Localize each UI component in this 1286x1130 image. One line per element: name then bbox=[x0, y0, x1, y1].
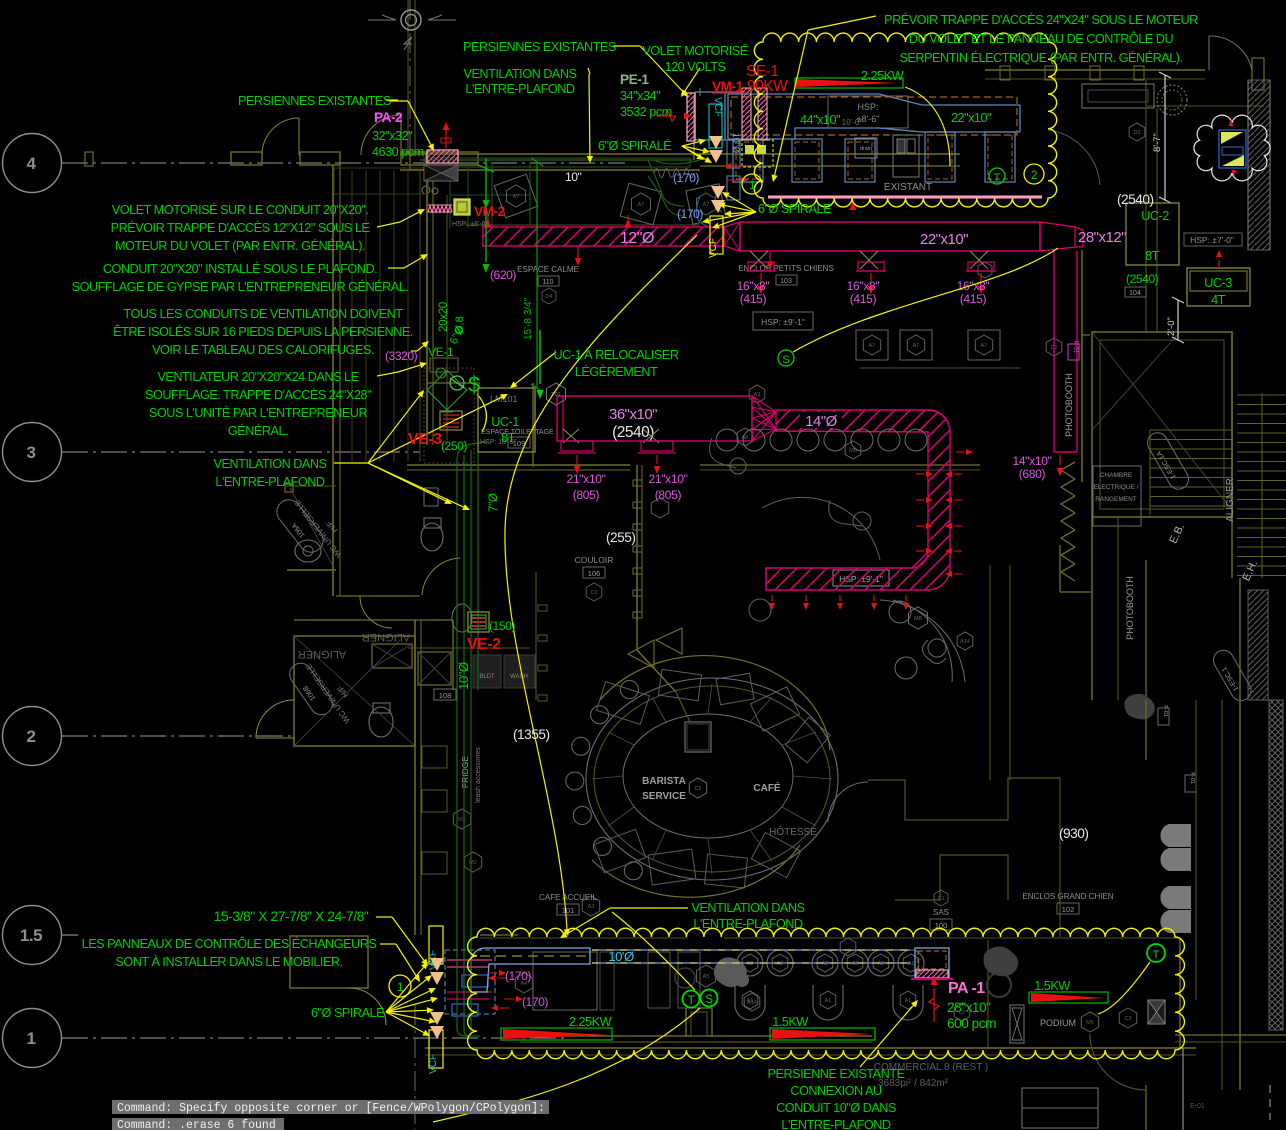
svg-text:UC-1 À RELOCALISER: UC-1 À RELOCALISER bbox=[554, 347, 679, 362]
svg-text:4630 pcm: 4630 pcm bbox=[372, 145, 424, 159]
svg-text:HSP: ±7'-0": HSP: ±7'-0" bbox=[1190, 235, 1234, 245]
svg-text:VE-1: VE-1 bbox=[428, 345, 454, 359]
svg-text:ALIGNER: ALIGNER bbox=[362, 631, 410, 643]
svg-text:SOUFFLAGE DE GYPSE PAR L'ENTRE: SOUFFLAGE DE GYPSE PAR L'ENTREPRENEUR GÉ… bbox=[72, 279, 409, 294]
svg-text:COULOIR: COULOIR bbox=[575, 555, 614, 565]
svg-text:22"x10": 22"x10" bbox=[951, 111, 991, 125]
svg-text:M5: M5 bbox=[1086, 1020, 1094, 1026]
svg-text:CHAMBRE: CHAMBRE bbox=[1100, 472, 1133, 479]
svg-text:VE-3: VE-3 bbox=[408, 431, 442, 448]
svg-text:CONDUIT 20"X20" INSTALLÉ SOUS: CONDUIT 20"X20" INSTALLÉ SOUS LE PLAFOND… bbox=[103, 261, 377, 276]
svg-text:HSP:: HSP: bbox=[857, 102, 878, 112]
svg-text:28"x12": 28"x12" bbox=[1078, 229, 1126, 246]
svg-text:ÊTRE ISOLÉS SUR 16 PIEDS DEPUI: ÊTRE ISOLÉS SUR 16 PIEDS DEPUIS LA PERSI… bbox=[113, 324, 413, 339]
svg-text:(415): (415) bbox=[740, 292, 767, 306]
svg-text:VOLET MOTORISÉ: VOLET MOTORISÉ bbox=[642, 43, 747, 58]
svg-text:A2: A2 bbox=[908, 961, 915, 967]
svg-text:28"x10": 28"x10" bbox=[947, 1000, 991, 1015]
svg-text:HSP: ±8'-6": HSP: ±8'-6" bbox=[452, 221, 489, 228]
svg-text:PERSIENNES EXISTANTES: PERSIENNES EXISTANTES bbox=[463, 40, 616, 54]
svg-text:2'-0": 2'-0" bbox=[1166, 317, 1177, 336]
svg-text:C2: C2 bbox=[590, 590, 597, 596]
svg-text:Command: .erase 6 found: Command: .erase 6 found bbox=[117, 1119, 276, 1130]
svg-text:PRÉVOIR TRAPPE D'ACCÈS 12"X12": PRÉVOIR TRAPPE D'ACCÈS 12"X12" SOUS LE bbox=[111, 220, 370, 235]
svg-text:D4: D4 bbox=[545, 294, 552, 300]
svg-text:BARISTA: BARISTA bbox=[642, 776, 686, 787]
svg-text:L'ENTRE-PLAFOND: L'ENTRE-PLAFOND bbox=[781, 1118, 890, 1130]
svg-text:PODIUM: PODIUM bbox=[1040, 1018, 1076, 1028]
svg-text:ESPACE CALME: ESPACE CALME bbox=[517, 265, 579, 274]
svg-text:(1355): (1355) bbox=[513, 727, 550, 742]
svg-text:10'Ø: 10'Ø bbox=[608, 949, 634, 964]
svg-text:(415): (415) bbox=[850, 292, 877, 306]
svg-text:L'ENTRE-PLAFOND: L'ENTRE-PLAFOND bbox=[465, 82, 574, 96]
svg-text:44"x10": 44"x10" bbox=[800, 113, 840, 127]
svg-text:A5: A5 bbox=[703, 974, 710, 980]
svg-text:36"x10": 36"x10" bbox=[609, 406, 657, 423]
svg-text:DU VOLET ET LE PANNEAU DE CONT: DU VOLET ET LE PANNEAU DE CONTRÔLE DU bbox=[909, 31, 1174, 46]
svg-text:10'-0": 10'-0" bbox=[842, 118, 863, 127]
svg-text:HSP: ±9'-1": HSP: ±9'-1" bbox=[761, 317, 805, 327]
svg-text:6"Ø SPIRALÉ: 6"Ø SPIRALÉ bbox=[598, 138, 671, 153]
svg-text:TOUS LES CONDUITS DE VENTILATI: TOUS LES CONDUITS DE VENTILATION DOIVENT bbox=[123, 307, 403, 321]
svg-text:SOUFFLAGE. TRAPPE D'ACCÈS 24"X: SOUFFLAGE. TRAPPE D'ACCÈS 24"X28" bbox=[145, 387, 371, 402]
svg-text:3532 pcm: 3532 pcm bbox=[620, 105, 672, 119]
svg-text:1: 1 bbox=[27, 1029, 36, 1048]
svg-text:2.25KW: 2.25KW bbox=[861, 69, 904, 83]
svg-text:106: 106 bbox=[588, 569, 601, 578]
svg-text:A7: A7 bbox=[513, 194, 520, 200]
svg-text:16"x8": 16"x8" bbox=[737, 279, 770, 293]
svg-text:120 VOLTS: 120 VOLTS bbox=[665, 60, 726, 74]
svg-text:PERSIENNES EXISTANTES: PERSIENNES EXISTANTES bbox=[238, 94, 391, 108]
svg-text:90KW: 90KW bbox=[747, 78, 788, 95]
svg-text:VENTILATEUR 20"X20"X24 DANS LE: VENTILATEUR 20"X20"X24 DANS LE bbox=[157, 370, 358, 384]
svg-text:7"Ø: 7"Ø bbox=[487, 493, 500, 512]
svg-text:10": 10" bbox=[565, 170, 582, 184]
svg-text:M1: M1 bbox=[458, 817, 466, 823]
svg-text:VE-2: VE-2 bbox=[467, 636, 501, 653]
svg-text:CONNEXION AU: CONNEXION AU bbox=[790, 1084, 882, 1098]
svg-text:600 pcm: 600 pcm bbox=[947, 1016, 996, 1031]
svg-text:T: T bbox=[688, 994, 695, 1007]
svg-text:1: 1 bbox=[749, 179, 755, 192]
svg-text:L'ENTRE-PLAFOND: L'ENTRE-PLAFOND bbox=[693, 917, 802, 931]
svg-text:A7: A7 bbox=[638, 202, 645, 208]
svg-text:14"Ø: 14"Ø bbox=[805, 413, 838, 430]
svg-text:SERPENTIN ÉLECTRIQUE (PAR ENTR: SERPENTIN ÉLECTRIQUE (PAR ENTR. GÉNÉRAL)… bbox=[899, 50, 1182, 65]
svg-text:4: 4 bbox=[27, 154, 37, 173]
svg-text:8'-7": 8'-7" bbox=[1152, 133, 1163, 152]
svg-text:(930): (930) bbox=[1059, 826, 1088, 841]
svg-text:drain: drain bbox=[860, 146, 872, 152]
svg-text:LÉGÈREMENT: LÉGÈREMENT bbox=[575, 364, 658, 379]
svg-text:UC-1: UC-1 bbox=[491, 415, 519, 429]
svg-text:Command: Specify opposite corn: Command: Specify opposite corner or [Fen… bbox=[117, 1102, 545, 1115]
svg-text:ALIGNER: ALIGNER bbox=[1225, 478, 1236, 522]
svg-text:VCF: VCF bbox=[712, 97, 723, 117]
svg-text:VOIR LE TABLEAU DES CALORIFUGE: VOIR LE TABLEAU DES CALORIFUGES. bbox=[152, 343, 374, 357]
svg-text:2: 2 bbox=[27, 727, 36, 746]
svg-text:A2: A2 bbox=[822, 961, 829, 967]
svg-text:A7: A7 bbox=[869, 343, 876, 349]
svg-text:22"x10": 22"x10" bbox=[920, 231, 968, 248]
svg-text:A2: A2 bbox=[747, 961, 754, 967]
svg-text:110: 110 bbox=[542, 279, 553, 286]
svg-text:A7: A7 bbox=[981, 343, 988, 349]
svg-text:15-3/8" X 27-7/8" X 24-7/8": 15-3/8" X 27-7/8" X 24-7/8" bbox=[214, 908, 369, 924]
svg-text:M2: M2 bbox=[469, 860, 477, 866]
svg-text:SONT À INSTALLER DANS LE MOBIL: SONT À INSTALLER DANS LE MOBILIER. bbox=[115, 954, 342, 969]
svg-text:(805): (805) bbox=[655, 488, 682, 502]
svg-text:A14: A14 bbox=[960, 639, 970, 645]
svg-text:A3: A3 bbox=[588, 904, 595, 910]
svg-text:10"Ø: 10"Ø bbox=[731, 133, 741, 153]
svg-text:PE-1: PE-1 bbox=[620, 72, 649, 87]
svg-text:VM-2: VM-2 bbox=[474, 204, 506, 219]
svg-text:15'-8 3/4": 15'-8 3/4" bbox=[523, 297, 534, 340]
svg-text:2: 2 bbox=[1031, 169, 1037, 182]
svg-text:C1: C1 bbox=[937, 896, 944, 902]
svg-text:14"x10": 14"x10" bbox=[1012, 454, 1051, 468]
svg-text:34"x34": 34"x34" bbox=[620, 89, 660, 103]
svg-text:PHOTOBOOTH: PHOTOBOOTH bbox=[1064, 373, 1074, 437]
svg-text:VENTILATION DANS: VENTILATION DANS bbox=[463, 67, 576, 81]
svg-text:HÔTESSE: HÔTESSE bbox=[769, 825, 817, 838]
svg-text:4T: 4T bbox=[1211, 293, 1226, 307]
svg-text:(805): (805) bbox=[573, 488, 600, 502]
svg-text:PRÉVOIR TRAPPE D'ACCÈS 24"X24": PRÉVOIR TRAPPE D'ACCÈS 24"X24" SOUS LE M… bbox=[884, 12, 1198, 27]
svg-text:(170): (170) bbox=[505, 969, 531, 983]
svg-text:UC-3: UC-3 bbox=[1204, 276, 1232, 290]
svg-text:VCF: VCF bbox=[708, 238, 719, 258]
svg-text:WASH: WASH bbox=[510, 674, 528, 680]
svg-text:(150): (150) bbox=[489, 619, 515, 633]
svg-text:(170): (170) bbox=[677, 207, 703, 221]
svg-text:ESPACE TOILETTAGE: ESPACE TOILETTAGE bbox=[481, 429, 554, 436]
svg-text:RANGEMENT: RANGEMENT bbox=[1095, 496, 1137, 503]
svg-text:A1: A1 bbox=[825, 998, 832, 1004]
svg-text:GÉNÉRAL.: GÉNÉRAL. bbox=[228, 423, 288, 438]
svg-text:6"Ø SPIRALÉ: 6"Ø SPIRALÉ bbox=[311, 1005, 384, 1020]
svg-text:16"x8": 16"x8" bbox=[847, 279, 880, 293]
svg-text:VOLET MOTORISÉ SUR LE CONDUIT: VOLET MOTORISÉ SUR LE CONDUIT 20"X20". bbox=[112, 202, 369, 217]
svg-text:SERVICE: SERVICE bbox=[642, 791, 686, 802]
svg-text:PA -1: PA -1 bbox=[948, 980, 985, 997]
svg-text:PHOTOBOOTH: PHOTOBOOTH bbox=[1125, 576, 1135, 640]
svg-text:C2: C2 bbox=[694, 786, 701, 792]
svg-text:EXISTANT: EXISTANT bbox=[884, 182, 932, 193]
svg-text:32"x32": 32"x32" bbox=[372, 129, 412, 143]
svg-text:21"x10": 21"x10" bbox=[566, 472, 605, 486]
svg-text:SOUS L'UNITÉ PAR L'ENTREPRENEU: SOUS L'UNITÉ PAR L'ENTREPRENEUR bbox=[149, 405, 368, 420]
svg-text:(170): (170) bbox=[522, 995, 548, 1009]
svg-text:108: 108 bbox=[439, 691, 452, 700]
svg-text:8T: 8T bbox=[501, 431, 516, 445]
svg-text:leash accessories: leash accessories bbox=[475, 747, 482, 803]
svg-text:3: 3 bbox=[27, 443, 36, 462]
svg-text:BLDT: BLDT bbox=[479, 674, 495, 680]
svg-text:(250): (250) bbox=[441, 439, 467, 453]
svg-text:C3: C3 bbox=[1124, 1016, 1131, 1022]
svg-text:(170): (170) bbox=[673, 171, 699, 185]
svg-text:102: 102 bbox=[1062, 905, 1075, 914]
svg-text:MOTEUR DU VOLET (PAR ENTR. GÉN: MOTEUR DU VOLET (PAR ENTR. GÉNÉRAL). bbox=[115, 238, 365, 253]
svg-text:(415): (415) bbox=[960, 292, 987, 306]
svg-text:ENCLOS GRAND CHIEN: ENCLOS GRAND CHIEN bbox=[1022, 892, 1113, 901]
svg-text:LES PANNEAUX DE CONTRÔLE DES É: LES PANNEAUX DE CONTRÔLE DES ÉCHANGEURS bbox=[82, 936, 377, 951]
svg-text:(620): (620) bbox=[490, 268, 516, 282]
svg-text:VENTILATION DANS: VENTILATION DANS bbox=[213, 457, 326, 471]
svg-text:E-01: E-01 bbox=[1190, 1103, 1205, 1110]
svg-text:S: S bbox=[705, 993, 713, 1006]
svg-text:P-01: P-01 bbox=[1162, 705, 1168, 717]
svg-text:(2540): (2540) bbox=[1117, 192, 1154, 207]
svg-text:101: 101 bbox=[562, 906, 575, 915]
svg-text:A2: A2 bbox=[852, 961, 859, 967]
svg-text:ENCLOS PETITS CHIENS: ENCLOS PETITS CHIENS bbox=[738, 264, 834, 273]
svg-text:(2540): (2540) bbox=[1126, 272, 1159, 286]
svg-text:21"x10": 21"x10" bbox=[648, 472, 687, 486]
svg-text:P-01: P-01 bbox=[1189, 772, 1195, 784]
svg-text:103: 103 bbox=[780, 278, 792, 285]
svg-text:CAFE ACCUEIL: CAFE ACCUEIL bbox=[539, 893, 597, 902]
svg-text:T: T bbox=[1153, 949, 1160, 961]
svg-text:2.25KW: 2.25KW bbox=[569, 1015, 612, 1029]
svg-text:P-01: P-01 bbox=[1072, 341, 1078, 354]
svg-text:FRIDGE: FRIDGE bbox=[460, 756, 470, 788]
svg-text:(255): (255) bbox=[606, 530, 635, 545]
svg-text:PERSIENNE EXISTANTE: PERSIENNE EXISTANTE bbox=[768, 1067, 905, 1081]
svg-text:10"Ø: 10"Ø bbox=[456, 662, 471, 690]
svg-text:ALIGNER: ALIGNER bbox=[298, 648, 346, 660]
svg-text:A14: A14 bbox=[747, 1000, 757, 1006]
svg-text:PA-2: PA-2 bbox=[374, 110, 403, 125]
svg-text:A7: A7 bbox=[703, 202, 710, 208]
svg-text:S: S bbox=[782, 354, 789, 366]
svg-text:A2: A2 bbox=[777, 961, 784, 967]
svg-text:A1: A1 bbox=[905, 998, 912, 1004]
svg-text:A2: A2 bbox=[878, 961, 885, 967]
svg-text:CAFÉ: CAFÉ bbox=[753, 781, 781, 794]
svg-text:20x20: 20x20 bbox=[437, 302, 450, 332]
svg-text:(680): (680) bbox=[1019, 467, 1046, 481]
svg-text:M8: M8 bbox=[914, 616, 922, 622]
svg-text:(3320): (3320) bbox=[385, 349, 418, 363]
svg-text:VENTILATION DANS: VENTILATION DANS bbox=[691, 901, 804, 915]
svg-text:ELECTRIQUE /: ELECTRIQUE / bbox=[1093, 484, 1138, 491]
svg-text:L'ENTRE-PLAFOND: L'ENTRE-PLAFOND bbox=[215, 475, 324, 489]
svg-text:VM-1: VM-1 bbox=[712, 79, 744, 94]
svg-text:12"Ø: 12"Ø bbox=[620, 230, 654, 247]
svg-text:1.5KW: 1.5KW bbox=[1034, 979, 1070, 993]
svg-text:104: 104 bbox=[1129, 290, 1141, 297]
svg-text:VCF: VCF bbox=[428, 1054, 439, 1074]
svg-text:6"Ø SPIRALE: 6"Ø SPIRALE bbox=[758, 202, 831, 216]
svg-text:UC-2: UC-2 bbox=[1141, 209, 1169, 223]
svg-text:CONDUIT 10"Ø DANS: CONDUIT 10"Ø DANS bbox=[776, 1101, 896, 1115]
svg-text:1.5: 1.5 bbox=[20, 926, 42, 945]
svg-text:1.5KW: 1.5KW bbox=[772, 1015, 808, 1029]
svg-text:T: T bbox=[994, 172, 1001, 184]
svg-text:8T: 8T bbox=[1145, 249, 1160, 263]
svg-text:D2: D2 bbox=[1133, 130, 1140, 136]
svg-text:A7: A7 bbox=[913, 343, 920, 349]
svg-text:A3: A3 bbox=[754, 392, 761, 398]
svg-text:SAS: SAS bbox=[933, 908, 949, 917]
